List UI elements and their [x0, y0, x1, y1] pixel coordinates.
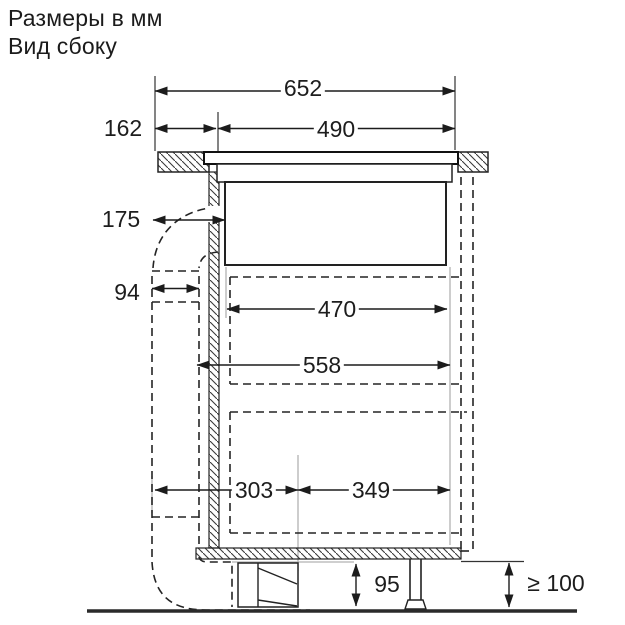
dim-value-162: 162	[101, 116, 145, 140]
leg-foot	[405, 600, 426, 609]
dim-value-94: 94	[111, 280, 143, 304]
plinth-area	[87, 559, 577, 611]
hob-upper-frame	[217, 164, 452, 182]
dim-value-175: 175	[99, 207, 143, 231]
hob-lower-housing	[225, 182, 446, 265]
extension-lines-gray	[152, 267, 450, 571]
worktop-left-section	[158, 152, 209, 172]
dim-value-470: 470	[315, 297, 359, 321]
dimension-drawing-page: Размеры в мм Вид сбоку	[0, 0, 625, 625]
dim-value-558: 558	[300, 353, 344, 377]
dim-value-490: 490	[314, 117, 358, 141]
hob-glass-top	[204, 152, 458, 164]
dim-value-95: 95	[371, 572, 403, 596]
cabinet-side-panel	[209, 172, 219, 548]
dim-value-652: 652	[281, 76, 325, 100]
dim-value-349: 349	[349, 478, 393, 502]
dim-value-min100: ≥ 100	[524, 571, 587, 595]
worktop-right-section	[458, 152, 488, 172]
dim-value-303: 303	[232, 478, 276, 502]
plinth-air-outlet	[238, 563, 298, 607]
cabinet-bottom-shelf	[196, 548, 461, 559]
hob-body	[204, 152, 458, 265]
